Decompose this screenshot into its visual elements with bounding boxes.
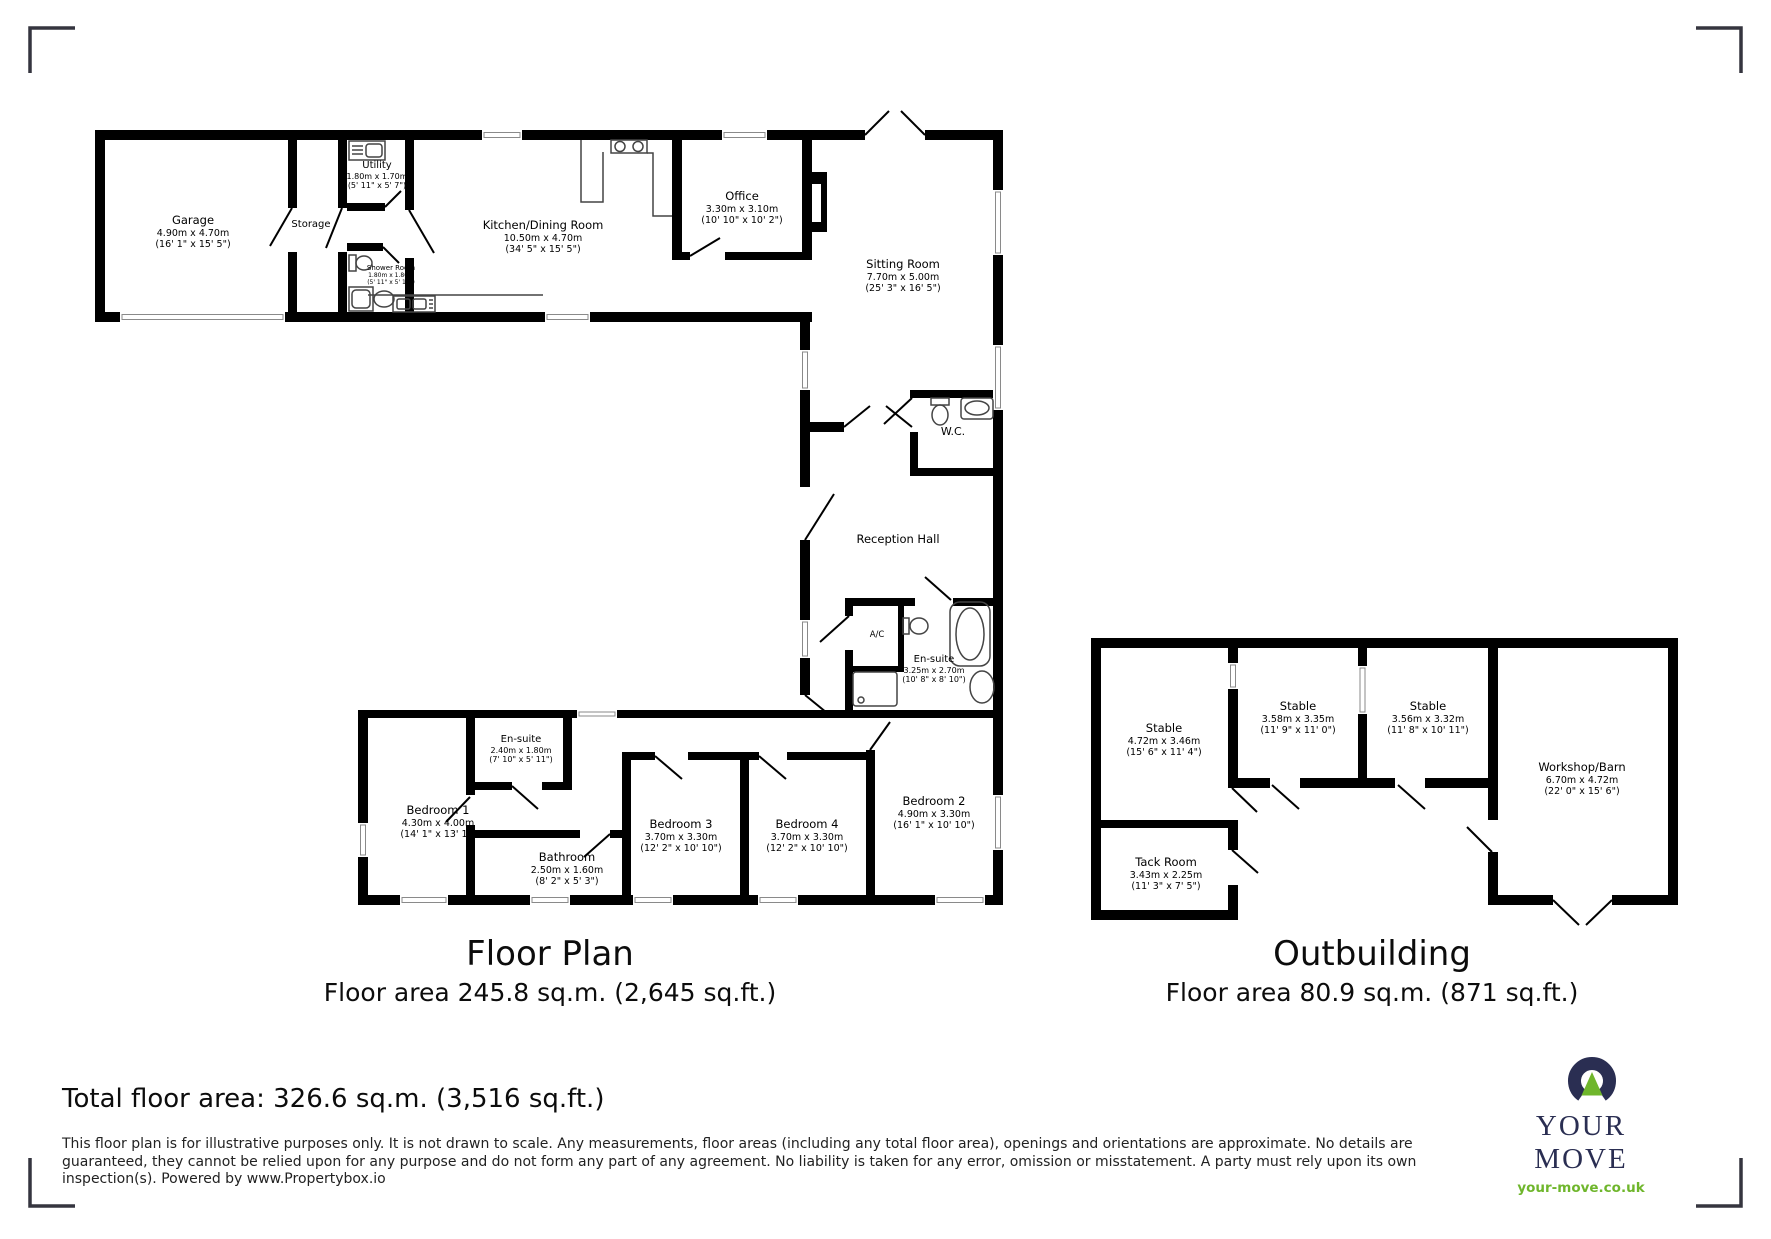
room-label-tack-room: Tack Room 3.43m x 2.25m (11' 3" x 7' 5") — [1130, 856, 1202, 892]
door-leaf — [1467, 827, 1492, 852]
room-label-bedroom3: Bedroom 3 3.70m x 3.30m (12' 2" x 10' 10… — [640, 818, 721, 854]
crop-mark-bottom-right — [1696, 1158, 1741, 1206]
window — [530, 895, 570, 905]
door-leaf — [1232, 788, 1257, 812]
room-label-bathroom: Bathroom 2.50m x 1.60m (8' 2" x 5' 3") — [531, 851, 603, 887]
door-leaf — [690, 238, 720, 256]
shower-basin-icon — [349, 287, 394, 311]
window — [993, 190, 1003, 255]
door-leaf — [901, 111, 925, 135]
door-leaf — [865, 111, 889, 135]
window — [758, 895, 798, 905]
yourmove-logo-icon — [1575, 1063, 1610, 1095]
door-leaf — [1272, 785, 1299, 809]
room-label-stable1: Stable 4.72m x 3.46m (15' 6" x 11' 4") — [1126, 722, 1201, 758]
room-label-sitting-room: Sitting Room 7.70m x 5.00m (25' 3" x 16'… — [865, 258, 940, 294]
window — [993, 795, 1003, 850]
room-label-utility: Utility 1.80m x 1.70m (5' 11" x 5' 7") — [346, 160, 407, 191]
doors — [1232, 785, 1612, 925]
window — [400, 895, 448, 905]
utility-sink-icon — [349, 141, 385, 160]
door-leaf — [512, 786, 538, 809]
hob-icon — [611, 140, 647, 153]
total-floor-area: Total floor area: 326.6 sq.m. (3,516 sq.… — [62, 1084, 604, 1114]
crop-mark-top-left — [30, 28, 75, 73]
room-label-bedroom2: Bedroom 2 4.90m x 3.30m (16' 1" x 10' 10… — [893, 795, 974, 831]
room-label-ensuite1: En-suite 2.40m x 1.80m (7' 10" x 5' 11") — [489, 734, 552, 765]
door-leaf — [1232, 850, 1258, 873]
disclaimer-text: This floor plan is for illustrative purp… — [62, 1136, 1432, 1189]
room-label-ensuite-master: En-suite 3.25m x 2.70m (10' 8" x 8' 10") — [902, 654, 965, 685]
door-leaf — [925, 577, 951, 600]
window — [482, 130, 522, 140]
fireplace-inset — [812, 184, 821, 222]
floorplan-drawing — [0, 0, 1771, 1239]
outbuilding-area: Floor area 80.9 sq.m. (871 sq.ft.) — [1166, 978, 1579, 1007]
shower-icon — [853, 672, 897, 706]
basin-icon — [970, 671, 994, 703]
toilet-icon — [903, 618, 928, 634]
door-leaf — [383, 247, 399, 263]
room-label-shower-room: Shower Room 1.80m x 1.80m (5' 11" x 5' 1… — [367, 264, 415, 286]
crop-marks — [30, 28, 1741, 1206]
yourmove-brand-text: YOUR MOVE — [1486, 1110, 1676, 1176]
door-leaf — [655, 756, 682, 779]
basin-icon — [961, 398, 993, 419]
room-label-stable2: Stable 3.58m x 3.35m (11' 9" x 11' 0") — [1260, 700, 1335, 736]
yourmove-logo: YOUR MOVE your-move.co.uk — [1486, 1108, 1676, 1196]
room-label-kitchen-dining: Kitchen/Dining Room 10.50m x 4.70m (34' … — [483, 219, 604, 255]
room-label-reception-hall: Reception Hall — [856, 533, 939, 547]
room-label-garage: Garage 4.90m x 4.70m (16' 1" x 15' 5") — [155, 214, 230, 250]
door-leaf — [1553, 900, 1579, 925]
room-label-bedroom1: Bedroom 1 4.30m x 4.00m (14' 1" x 13' 1"… — [400, 804, 475, 840]
room-label-stable3: Stable 3.56m x 3.32m (11' 8" x 10' 11") — [1387, 700, 1468, 736]
door-leaf — [270, 208, 292, 246]
outbuilding-title: Outbuilding — [1273, 934, 1471, 974]
crop-mark-top-right — [1696, 28, 1741, 73]
door-leaf — [1586, 900, 1612, 925]
door-leaf — [805, 494, 834, 540]
window — [545, 312, 590, 322]
toilet-icon — [931, 398, 949, 425]
room-label-bedroom4: Bedroom 4 3.70m x 3.30m (12' 2" x 10' 10… — [766, 818, 847, 854]
door-leaf — [870, 722, 890, 750]
yourmove-website-text: your-move.co.uk — [1486, 1180, 1676, 1196]
window — [935, 895, 985, 905]
window — [722, 130, 767, 140]
window — [993, 345, 1003, 410]
door-leaf — [409, 210, 434, 253]
window — [1358, 666, 1367, 714]
door-leaf — [385, 191, 401, 207]
room-label-wc: W.C. — [941, 426, 965, 439]
room-label-storage: Storage — [291, 219, 330, 231]
window — [577, 710, 617, 718]
window — [800, 350, 810, 390]
floorplan-area: Floor area 245.8 sq.m. (2,645 sq.ft.) — [324, 978, 776, 1007]
window — [358, 823, 368, 857]
door-leaf — [759, 756, 786, 779]
door-leaf — [844, 406, 870, 427]
room-label-office: Office 3.30m x 3.10m (10' 10" x 10' 2") — [701, 190, 782, 226]
window — [1228, 663, 1238, 689]
room-label-workshop-barn: Workshop/Barn 6.70m x 4.72m (22' 0" x 15… — [1538, 761, 1625, 797]
doors — [270, 111, 951, 857]
window — [633, 895, 673, 905]
floorplan-title: Floor Plan — [466, 934, 634, 974]
door-leaf — [820, 616, 849, 642]
window — [800, 620, 810, 658]
door-leaf — [1398, 785, 1425, 809]
garage-door — [120, 312, 285, 322]
door-leaf — [884, 398, 912, 424]
fixtures — [349, 140, 994, 706]
room-label-ac: A/C — [870, 630, 885, 640]
floorplan-page: Garage 4.90m x 4.70m (16' 1" x 15' 5") S… — [0, 0, 1771, 1239]
